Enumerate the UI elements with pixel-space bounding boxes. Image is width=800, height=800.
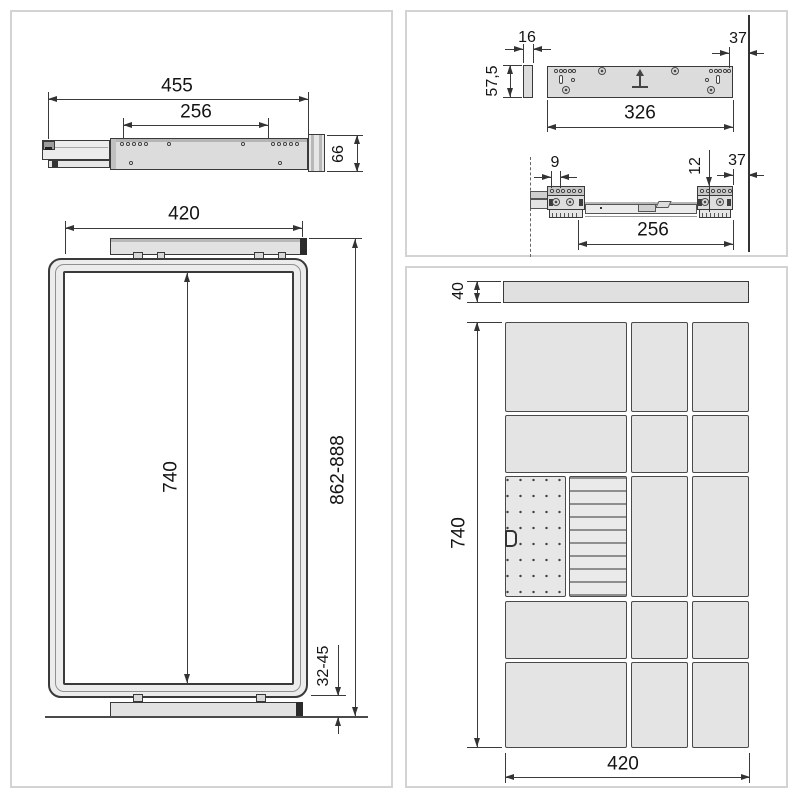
arrowhead xyxy=(259,122,268,128)
dim-label-inner-height: 740 xyxy=(162,461,181,493)
arrowhead xyxy=(505,774,514,780)
arrowhead xyxy=(352,707,358,716)
extension-line xyxy=(733,100,734,132)
arrow-base xyxy=(632,86,648,88)
plate-hole xyxy=(571,78,575,82)
extension-line xyxy=(733,220,734,250)
panel-top-rail xyxy=(503,281,749,303)
arrowhead xyxy=(293,225,302,231)
panel-cell xyxy=(692,662,749,748)
top-bar-end-cap xyxy=(300,238,307,255)
rail-stub xyxy=(530,199,548,209)
arrowhead xyxy=(724,241,733,247)
plate-hole xyxy=(554,69,558,73)
bottom-bar-end-cap xyxy=(296,702,303,717)
panel-cell xyxy=(505,601,627,659)
dim-line xyxy=(547,127,733,128)
arrowhead xyxy=(578,241,587,247)
wall-line xyxy=(748,15,750,252)
bracket-hole xyxy=(728,189,732,193)
extension-line xyxy=(467,281,501,282)
panel-cell xyxy=(692,322,749,412)
arrowhead xyxy=(748,172,757,178)
screw-hole xyxy=(278,161,282,165)
dim-line xyxy=(505,777,750,778)
arrowhead xyxy=(547,124,556,130)
extension-line xyxy=(523,44,524,63)
screw-hole xyxy=(120,142,124,146)
dim-label-side-clearance-bottom: 37 xyxy=(728,153,746,169)
dim-label-plate-thickness: 16 xyxy=(518,30,536,46)
panel-cell xyxy=(505,322,627,412)
technical-drawing-sheet: 455 256 66 420 xyxy=(0,0,800,800)
screw-hole xyxy=(167,142,171,146)
rail-stub xyxy=(530,191,548,199)
dim-label-hole-pitch-top-view: 256 xyxy=(637,221,669,240)
arrowhead xyxy=(706,177,712,186)
screw-hole xyxy=(126,142,130,146)
arrowhead xyxy=(299,96,308,102)
dim-label-top-width: 420 xyxy=(168,205,200,224)
dim-label-side-clearance-top: 37 xyxy=(729,31,747,47)
rivet-hole xyxy=(707,86,715,94)
rail-detail-dot xyxy=(600,207,602,209)
dim-label-total-length: 455 xyxy=(161,77,193,96)
plate-hole xyxy=(727,69,731,73)
bottom-mount-bar xyxy=(110,702,303,717)
arrowhead xyxy=(123,122,132,128)
top-bar-edge xyxy=(111,239,306,242)
arrowhead xyxy=(474,293,480,302)
extension-line xyxy=(733,169,734,185)
plate-hole xyxy=(705,78,709,82)
arrowhead xyxy=(533,46,542,52)
rivet-hole xyxy=(562,86,570,94)
bracket-tab xyxy=(579,199,583,206)
dim-line xyxy=(65,228,302,229)
bracket-hole xyxy=(567,189,571,193)
bracket-rivet xyxy=(566,198,574,206)
dim-label-panel-height: 740 xyxy=(450,517,469,549)
arrowhead xyxy=(507,88,513,97)
arrowhead xyxy=(474,322,480,331)
rail-front-mark xyxy=(45,147,52,150)
top-right-panel xyxy=(405,10,788,257)
panel-cell xyxy=(692,476,749,597)
bracket-rivet xyxy=(716,198,724,206)
plate-hole xyxy=(718,69,722,73)
screw-hole xyxy=(144,142,148,146)
panel-cell xyxy=(631,601,688,659)
arrowhead xyxy=(507,65,513,74)
screw-hole xyxy=(271,142,275,146)
slide-body-left-edge xyxy=(111,139,116,169)
bracket-rivet xyxy=(701,198,709,206)
bracket-hole xyxy=(556,189,560,193)
arrowhead xyxy=(542,174,551,180)
arrowhead xyxy=(354,163,360,172)
panel-cell xyxy=(505,662,627,748)
slot-hole xyxy=(716,75,720,84)
panel-cell xyxy=(505,415,627,473)
flange-teeth xyxy=(552,213,580,217)
bar-clip xyxy=(256,694,266,702)
dim-label-hole-pitch: 256 xyxy=(180,103,212,122)
bracket-hole xyxy=(550,189,554,193)
bracket-hole xyxy=(717,189,721,193)
plate-hole xyxy=(572,69,576,73)
screw-hole xyxy=(129,161,133,165)
bracket-rivet xyxy=(552,198,560,206)
screw-hole xyxy=(138,142,142,146)
flange-teeth xyxy=(702,213,728,217)
bar-clip xyxy=(133,694,143,702)
rail-lug xyxy=(52,161,58,167)
panel-cell xyxy=(692,601,749,659)
arrowhead xyxy=(724,124,733,130)
extension-line xyxy=(65,221,66,254)
dim-line xyxy=(187,273,188,683)
extension-line xyxy=(467,747,502,748)
dim-label-plate-height: 57,5 xyxy=(485,65,501,96)
arrow-shaft xyxy=(639,74,641,86)
rivet-hole xyxy=(598,67,606,75)
extension-line xyxy=(560,171,561,188)
dim-label-floor-clearance: 32-45 xyxy=(316,646,332,687)
extension-line xyxy=(308,92,309,134)
arrowhead xyxy=(354,135,360,144)
panel-cell xyxy=(631,415,688,473)
arrowhead xyxy=(48,96,57,102)
arrowhead xyxy=(335,717,341,726)
arrowhead xyxy=(352,239,358,248)
dim-line xyxy=(578,244,733,245)
louvre-cell xyxy=(569,476,627,597)
extension-line xyxy=(551,171,552,188)
extension-line xyxy=(302,221,303,237)
hook-icon xyxy=(505,530,517,547)
arrowhead xyxy=(474,738,480,747)
extension-line xyxy=(533,44,534,63)
dim-label-overall-height: 862-888 xyxy=(329,435,348,505)
bracket-hole xyxy=(572,189,576,193)
arrowhead xyxy=(474,281,480,290)
screw-hole xyxy=(289,142,293,146)
arrowhead xyxy=(184,273,190,282)
dim-label-end-height: 66 xyxy=(331,145,347,163)
screw-hole xyxy=(283,142,287,146)
end-cap-rib xyxy=(319,135,322,171)
arrowhead xyxy=(65,225,74,231)
arrowhead xyxy=(560,174,569,180)
bracket-hole xyxy=(700,189,704,193)
plate-hole xyxy=(709,69,713,73)
insertion-arrow-icon xyxy=(632,69,648,89)
screw-hole xyxy=(277,142,281,146)
arrowhead xyxy=(514,46,523,52)
rail-bottom-edge xyxy=(585,216,697,217)
arrowhead xyxy=(724,172,733,178)
ground-line xyxy=(45,716,368,718)
extension-line xyxy=(467,322,502,323)
plate-side-section xyxy=(523,65,533,98)
bracket-hole xyxy=(722,189,726,193)
rivet-hole xyxy=(671,67,679,75)
plate-hole xyxy=(563,69,567,73)
extension-line xyxy=(729,47,730,68)
dim-line xyxy=(477,323,478,747)
dim-label-rear-hole-offset: 12 xyxy=(688,157,704,175)
dim-label-plate-length: 326 xyxy=(624,104,656,123)
dim-line xyxy=(355,239,356,717)
dim-label-top-bar-height: 40 xyxy=(451,282,467,300)
screw-hole xyxy=(241,142,245,146)
panel-cell xyxy=(692,415,749,473)
arrowhead xyxy=(720,50,729,56)
bracket-tab xyxy=(727,199,731,206)
slot-hole xyxy=(559,75,563,84)
dim-line xyxy=(48,99,308,100)
panel-cell xyxy=(631,322,688,412)
extension-line xyxy=(503,97,522,98)
screw-hole xyxy=(132,142,136,146)
end-cap-rib xyxy=(311,135,314,171)
dim-label-front-hole-offset: 9 xyxy=(551,155,560,171)
bracket-hole xyxy=(578,189,582,193)
extension-line xyxy=(467,302,501,303)
dim-line xyxy=(123,125,268,126)
arrowhead xyxy=(184,674,190,683)
panel-cell xyxy=(631,662,688,748)
panel-cell xyxy=(631,476,688,597)
dim-label-panel-width: 420 xyxy=(607,755,639,774)
bracket-hole xyxy=(711,189,715,193)
arrowhead xyxy=(335,687,341,696)
extension-line xyxy=(48,92,49,139)
screw-hole xyxy=(295,142,299,146)
rail-latch xyxy=(638,204,656,212)
arrowhead xyxy=(741,774,750,780)
bracket-hole xyxy=(561,189,565,193)
